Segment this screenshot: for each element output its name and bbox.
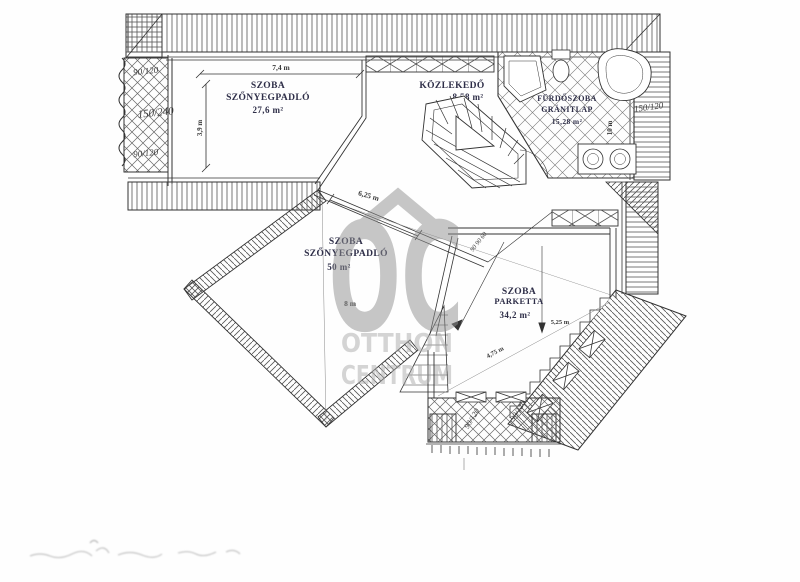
watermark-line2: CENTRUM	[341, 361, 453, 391]
braced-wall-band-bath	[552, 210, 618, 226]
top-roof-band	[126, 14, 660, 58]
room3-name2: GRÁNITLAP	[541, 104, 593, 114]
window-size-left-middle: 150/240	[137, 105, 175, 121]
dim-room5-depth: 4,75 m	[486, 345, 506, 360]
dim-room1-depth: 3,9 m	[196, 120, 204, 137]
floor-plan-drawing: 90/120 150/240 90/120 SZOBA SZŐNYEGPADLÓ…	[0, 0, 800, 582]
room3-name1: FÜRDŐSZOBA	[537, 93, 597, 103]
braced-wall-band-top	[366, 56, 494, 72]
room3-area: 15,28 m²	[552, 117, 583, 126]
room2-name1: KÖZLEKEDŐ	[419, 78, 484, 91]
bottom-balcony	[426, 392, 562, 470]
room5-area: 34,2 m²	[500, 310, 531, 320]
dim-room1-width: 7,4 m	[272, 63, 290, 72]
watermark: OC OTTHON CENTRUM	[329, 192, 464, 391]
dim-room5-width: 5,25 m	[551, 319, 570, 326]
bathtub	[598, 49, 651, 101]
floor-plan-scan: 90/120 150/240 90/120 SZOBA SZŐNYEGPADLÓ…	[0, 0, 800, 582]
watermark-line1: OTTHON	[341, 329, 453, 359]
faint-pencil-note	[30, 541, 240, 558]
room1-area: 27,6 m²	[253, 105, 284, 115]
room5-name2: PARKETTA	[494, 296, 544, 306]
double-washbasin	[578, 144, 636, 174]
right-roof-band-lower	[606, 182, 658, 294]
room1-name2: SZŐNYEGPADLÓ	[226, 91, 310, 103]
dim-bath-side: 10 m	[606, 121, 614, 136]
balcony-railing	[432, 445, 549, 457]
toilet	[552, 50, 570, 82]
room1-name1: SZOBA	[251, 81, 285, 91]
